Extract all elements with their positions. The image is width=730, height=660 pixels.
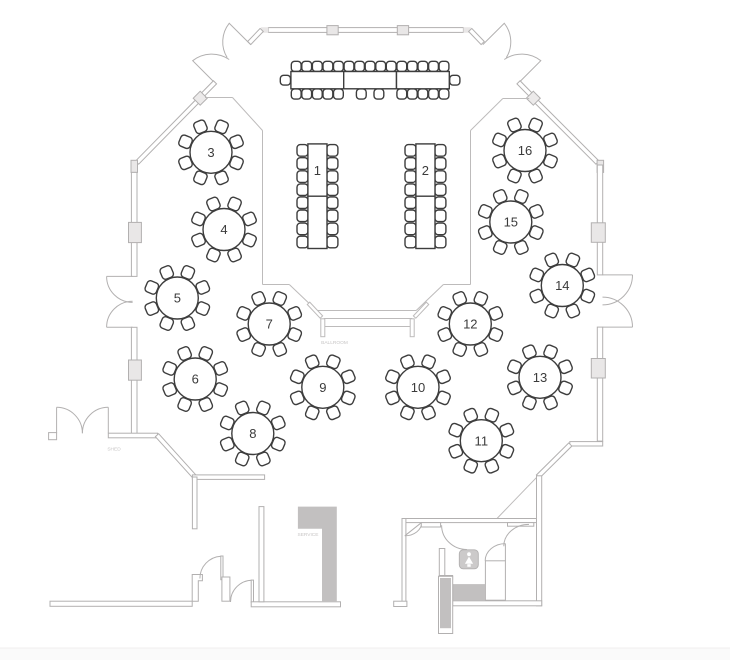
- svg-text:SHED: SHED: [107, 447, 121, 453]
- svg-text:13: 13: [533, 370, 547, 385]
- svg-text:2: 2: [422, 163, 429, 178]
- svg-text:15: 15: [504, 215, 518, 230]
- svg-text:11: 11: [475, 433, 489, 448]
- svg-text:14: 14: [555, 278, 569, 293]
- svg-text:6: 6: [192, 372, 199, 387]
- svg-text:8: 8: [249, 426, 256, 441]
- svg-text:5: 5: [174, 291, 181, 306]
- svg-text:4: 4: [220, 222, 227, 237]
- svg-text:1: 1: [314, 163, 321, 178]
- svg-text:SERVICE: SERVICE: [298, 532, 319, 538]
- svg-text:12: 12: [463, 317, 477, 332]
- svg-text:7: 7: [266, 317, 273, 332]
- svg-text:10: 10: [411, 380, 425, 395]
- svg-text:9: 9: [319, 380, 326, 395]
- svg-text:BALLROOM: BALLROOM: [321, 340, 348, 346]
- svg-text:16: 16: [518, 143, 532, 158]
- svg-text:3: 3: [207, 145, 214, 160]
